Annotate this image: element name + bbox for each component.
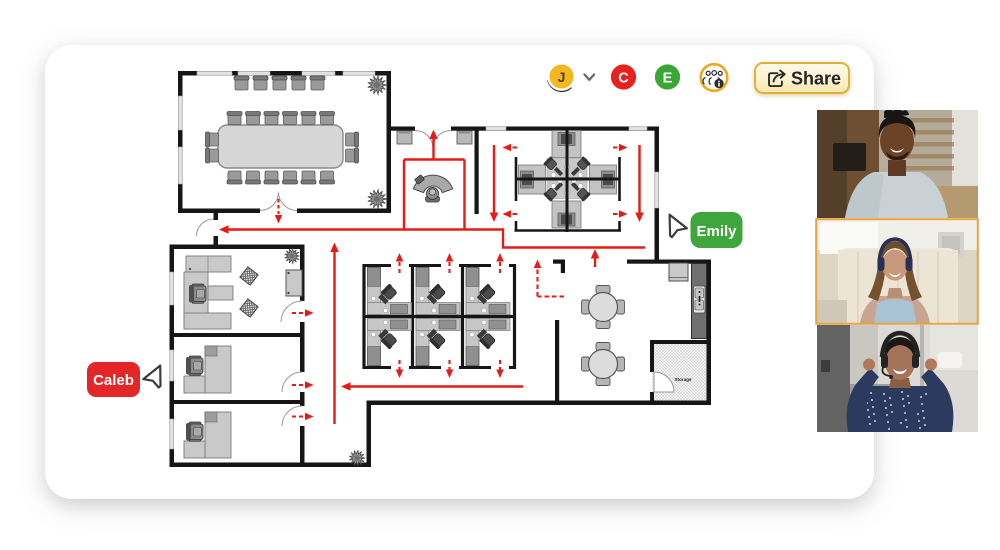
- svg-text:Share: Share: [791, 69, 841, 89]
- svg-text:J: J: [558, 69, 566, 85]
- svg-text:Storage: Storage: [674, 377, 692, 382]
- svg-text:Caleb: Caleb: [93, 372, 134, 389]
- svg-text:C: C: [618, 70, 629, 86]
- svg-text:E: E: [663, 70, 673, 86]
- svg-text:Emily: Emily: [696, 223, 737, 240]
